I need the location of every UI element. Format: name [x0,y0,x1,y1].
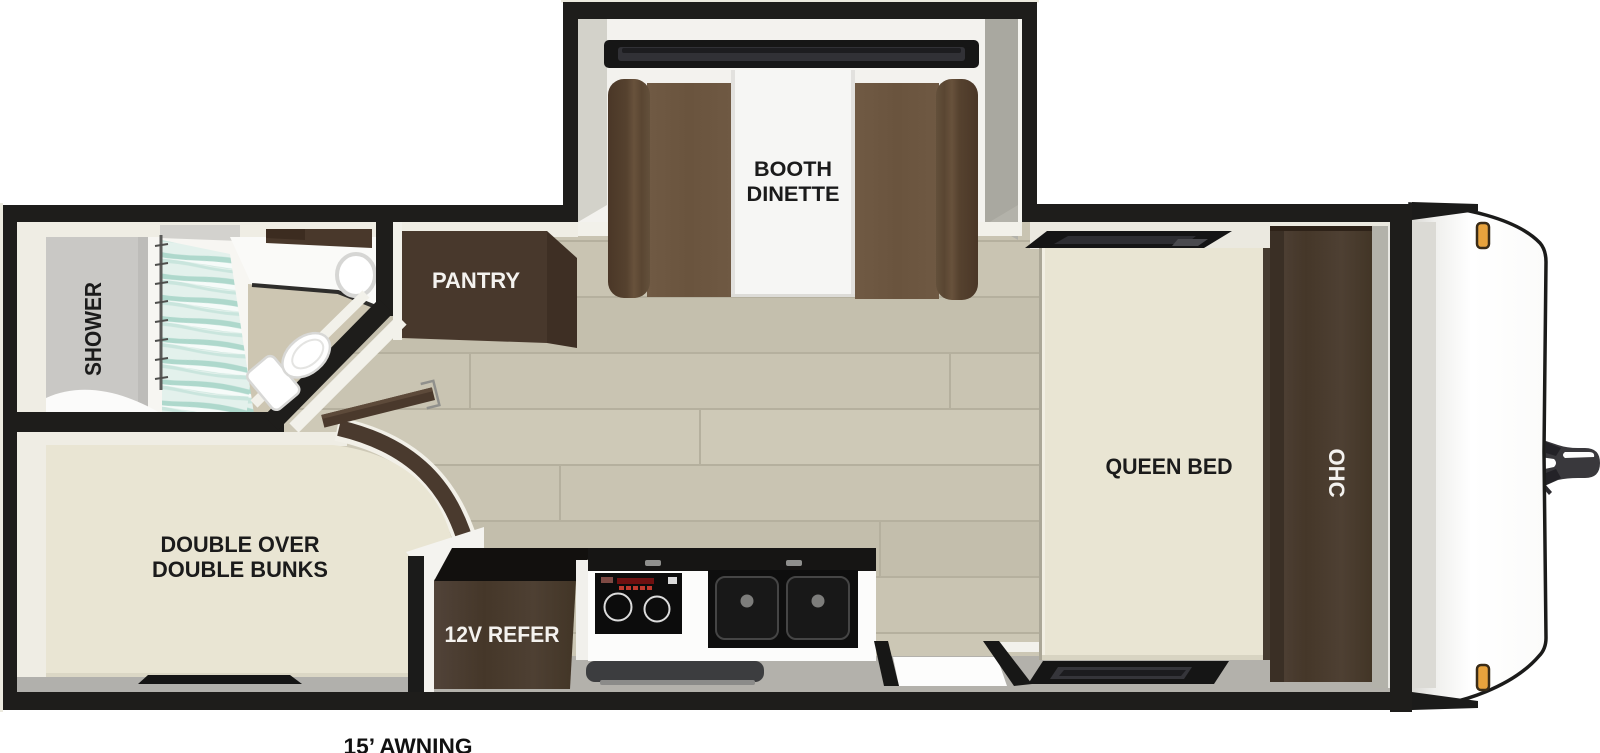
svg-text:SHOWER: SHOWER [80,282,106,376]
svg-text:12V REFER: 12V REFER [445,622,560,647]
svg-text:15’ AWNING: 15’ AWNING [344,734,473,753]
svg-text:OHC: OHC [1324,449,1349,498]
svg-text:PANTRY: PANTRY [432,268,520,293]
svg-text:BOOTH: BOOTH [754,158,832,181]
svg-text:DOUBLE OVER: DOUBLE OVER [161,532,320,557]
svg-text:QUEEN BED: QUEEN BED [1106,454,1233,479]
svg-text:DINETTE: DINETTE [747,183,840,206]
svg-text:DOUBLE BUNKS: DOUBLE BUNKS [152,557,328,582]
